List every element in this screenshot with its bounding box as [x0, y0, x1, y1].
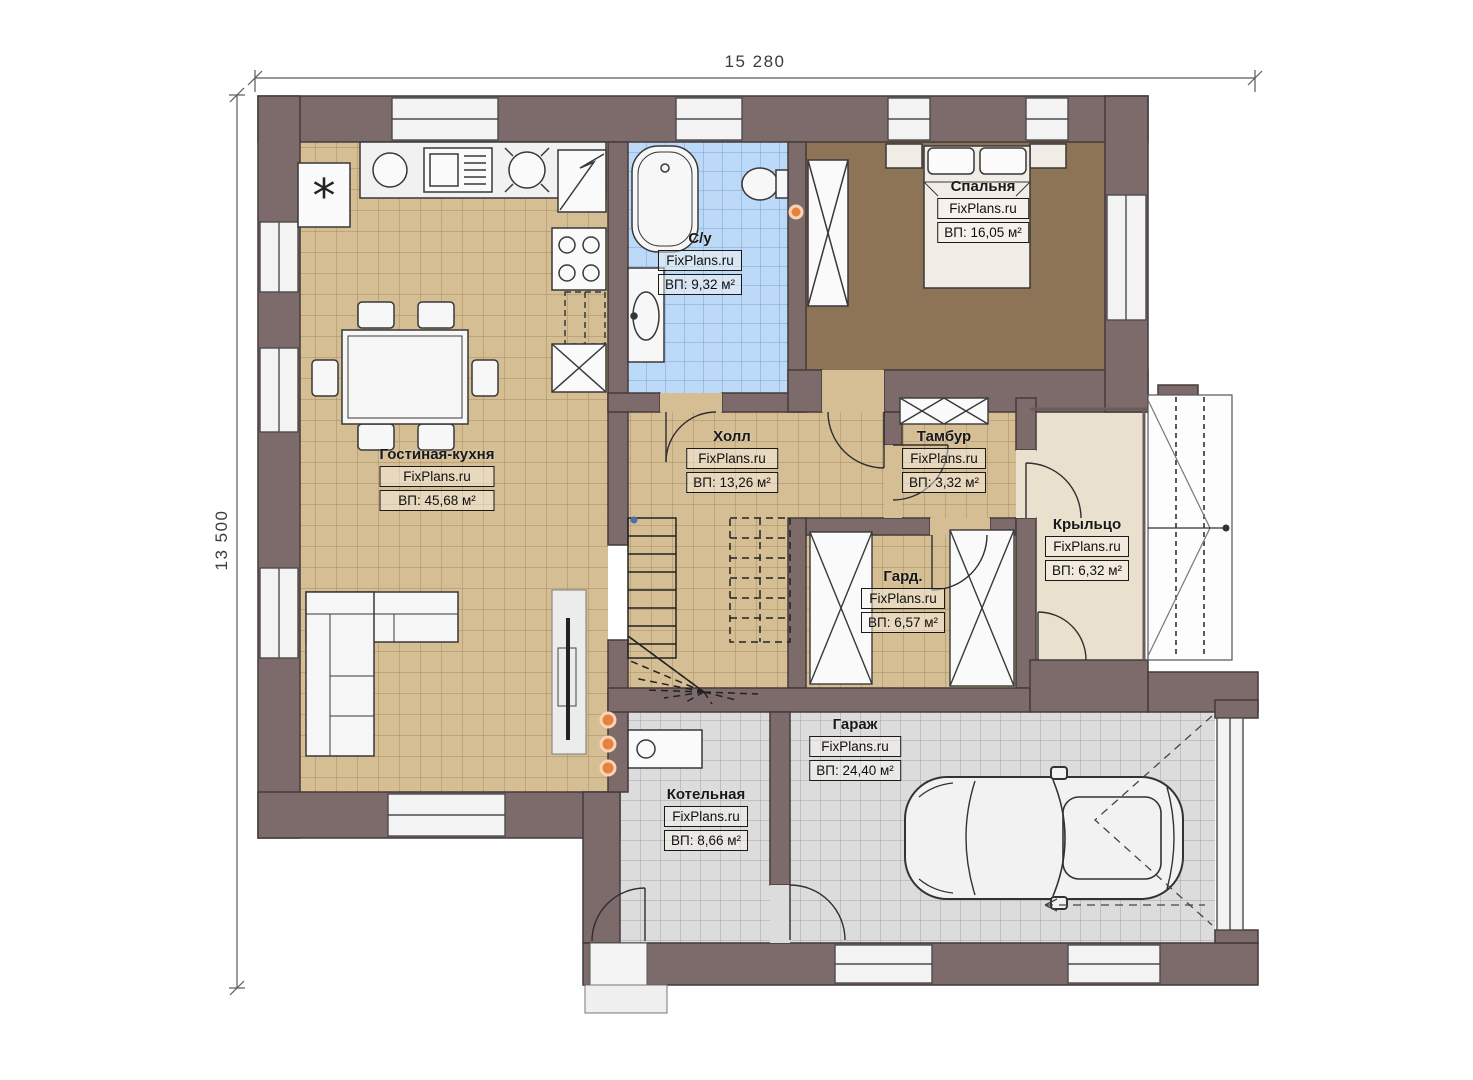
room-label-bathroom: С/у FixPlans.ru ВП: 9,32 м²	[658, 230, 742, 295]
cooktop	[552, 228, 606, 290]
chair	[312, 360, 338, 396]
nightstand	[1030, 144, 1066, 168]
corner-cabinet	[558, 150, 606, 212]
window-right-bedroom	[1107, 195, 1146, 320]
room-label-garage: Гараж FixPlans.ru ВП: 24,40 м²	[809, 716, 901, 781]
kitchen-sink	[373, 153, 407, 187]
window-left-3	[260, 568, 298, 658]
vestibule-closet	[900, 398, 988, 424]
room-name: Гостиная-кухня	[380, 446, 495, 463]
room-area: ВП: 3,32 м²	[902, 472, 986, 493]
kitchen-oven	[424, 148, 492, 192]
room-brand: FixPlans.ru	[664, 806, 748, 827]
garage-door-panel	[1217, 718, 1243, 930]
toilet	[742, 168, 788, 200]
room-label-porch: Крыльцо FixPlans.ru ВП: 6,32 м²	[1045, 516, 1129, 581]
kitchen-corner-sink	[505, 148, 549, 192]
tv-stand	[552, 590, 586, 754]
chair	[418, 302, 454, 328]
room-area: ВП: 16,05 м²	[937, 222, 1029, 243]
dimension-width-label: 15 280	[725, 52, 786, 72]
car	[905, 767, 1183, 909]
pillow	[928, 148, 974, 174]
room-name: Гараж	[809, 716, 901, 733]
room-label-boiler-room: Котельная FixPlans.ru ВП: 8,66 м²	[664, 786, 748, 851]
dining-table	[342, 330, 468, 424]
room-label-living-kitchen: Гостиная-кухня FixPlans.ru ВП: 45,68 м²	[380, 446, 495, 511]
room-area: ВП: 8,66 м²	[664, 830, 748, 851]
room-area: ВП: 6,32 м²	[1045, 560, 1129, 581]
room-name: Гард.	[861, 568, 945, 585]
cabinet-crossed	[552, 344, 606, 392]
room-label-vestibule: Тамбур FixPlans.ru ВП: 3,32 м²	[902, 428, 986, 493]
pillow	[980, 148, 1026, 174]
wardrobe-closet-right	[950, 530, 1014, 686]
room-name: Холл	[686, 428, 778, 445]
window-bottom-garage-1	[835, 945, 932, 983]
window-top-kitchen	[392, 98, 498, 140]
window-bottom-garage-2	[1068, 945, 1160, 983]
window-top-bedroom-2	[1026, 98, 1068, 140]
car-mirror	[1051, 767, 1067, 779]
light-dot	[601, 713, 615, 727]
porch-steps	[1148, 395, 1232, 660]
window-left-1	[260, 222, 298, 292]
boiler-unit	[628, 730, 702, 768]
room-area: ВП: 6,57 м²	[861, 612, 945, 633]
window-top-bathroom	[676, 98, 742, 140]
room-area: ВП: 24,40 м²	[809, 760, 901, 781]
room-brand: FixPlans.ru	[861, 588, 945, 609]
room-brand: FixPlans.ru	[686, 448, 778, 469]
light-dot	[601, 737, 615, 751]
room-brand: FixPlans.ru	[902, 448, 986, 469]
light-dot	[601, 761, 615, 775]
fridge: *	[298, 163, 350, 227]
room-brand: FixPlans.ru	[937, 198, 1029, 219]
tv	[566, 618, 570, 740]
floor-plan: *	[0, 0, 1473, 1080]
room-name: Крыльцо	[1045, 516, 1129, 533]
room-name: Котельная	[664, 786, 748, 803]
room-name: С/у	[658, 230, 742, 247]
room-brand: FixPlans.ru	[1045, 536, 1129, 557]
window-left-2	[260, 348, 298, 432]
room-area: ВП: 9,32 м²	[658, 274, 742, 295]
room-brand: FixPlans.ru	[809, 736, 901, 757]
room-area: ВП: 13,26 м²	[686, 472, 778, 493]
dimension-height-label: 13 500	[212, 510, 232, 571]
nightstand	[886, 144, 922, 168]
room-label-hall: Холл FixPlans.ru ВП: 13,26 м²	[686, 428, 778, 493]
room-name: Спальня	[937, 178, 1029, 195]
room-label-wardrobe: Гард. FixPlans.ru ВП: 6,57 м²	[861, 568, 945, 633]
room-brand: FixPlans.ru	[658, 250, 742, 271]
room-label-bedroom: Спальня FixPlans.ru ВП: 16,05 м²	[937, 178, 1029, 243]
room-name: Тамбур	[902, 428, 986, 445]
window-top-bedroom-1	[888, 98, 930, 140]
room-area: ВП: 45,68 м²	[380, 490, 495, 511]
window-bottom-living	[388, 794, 505, 836]
stair-start-dot	[631, 517, 638, 524]
svg-text:*: *	[313, 169, 336, 223]
chair	[358, 302, 394, 328]
car-mirror	[1051, 897, 1067, 909]
room-brand: FixPlans.ru	[380, 466, 495, 487]
light-dot	[790, 206, 802, 218]
chair	[472, 360, 498, 396]
bedroom-wardrobe	[808, 160, 848, 306]
